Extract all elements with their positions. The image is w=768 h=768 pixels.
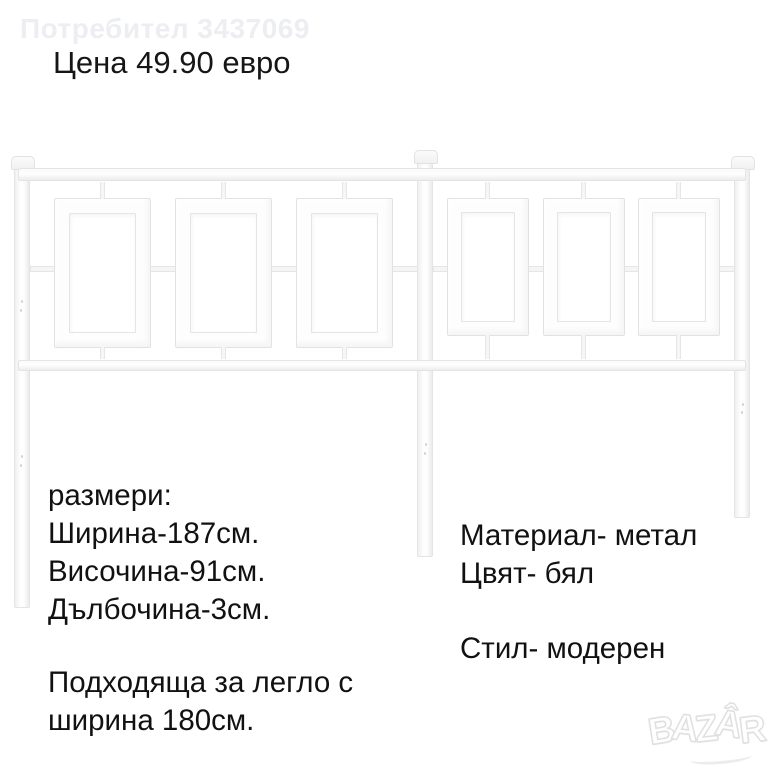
dimensions-block: размери: Ширина-187см. Височина-91см. Дъ… xyxy=(48,477,270,629)
color-line: Цвят- бял xyxy=(460,555,697,593)
top-rail xyxy=(18,168,746,181)
frame-opening xyxy=(557,212,611,322)
depth-line: Дълбочина-3см. xyxy=(48,591,270,629)
bed-post-left xyxy=(14,158,30,608)
bed-post-right xyxy=(734,158,750,518)
connector xyxy=(221,347,226,359)
connector xyxy=(342,182,347,199)
connector xyxy=(100,182,105,199)
screw-mark xyxy=(21,300,23,303)
sizes-title: размери: xyxy=(48,477,270,515)
frame-rectangle xyxy=(447,198,529,336)
connector xyxy=(485,335,490,359)
connector xyxy=(581,182,586,199)
screw-mark xyxy=(742,403,744,406)
height-line: Височина-91см. xyxy=(48,553,270,591)
screw-mark xyxy=(20,309,22,312)
frame-opening xyxy=(190,213,257,333)
frame-rectangle xyxy=(543,198,625,336)
frame-rectangle xyxy=(175,198,272,348)
connector xyxy=(676,182,681,199)
frame-opening xyxy=(69,213,136,333)
connector xyxy=(221,182,226,199)
bottom-rail xyxy=(18,360,746,371)
listing-image: Потребител 3437069 Цена 49.90 евро xyxy=(0,0,768,768)
screw-mark xyxy=(20,464,22,467)
price-text: Цена 49.90 евро xyxy=(53,45,291,81)
frame-rectangle xyxy=(296,198,393,348)
material-line: Материал- метал xyxy=(460,517,697,555)
connector xyxy=(581,335,586,359)
screw-mark xyxy=(741,411,743,414)
frame-rectangle xyxy=(54,198,151,348)
connector xyxy=(342,347,347,359)
connector xyxy=(485,182,490,199)
frame-opening xyxy=(652,212,706,322)
width-line: Ширина-187см. xyxy=(48,515,270,553)
fit-note-block: Подходяща за легло с ширина 180см. xyxy=(48,664,353,740)
connector xyxy=(676,335,681,359)
specs-block: Материал- метал Цвят- бял xyxy=(460,517,697,593)
screw-mark xyxy=(424,452,426,455)
screw-mark xyxy=(425,443,427,446)
connector xyxy=(100,347,105,359)
bazar-logo-watermark: BAZÂR xyxy=(648,706,764,764)
fit-line-2: ширина 180см. xyxy=(48,702,353,740)
fit-line-1: Подходяща за легло с xyxy=(48,664,353,702)
frame-opening xyxy=(311,213,378,333)
bed-post-center xyxy=(417,152,433,557)
user-watermark: Потребител 3437069 xyxy=(20,13,310,45)
panel-group-left xyxy=(30,198,417,348)
logo-letter: R xyxy=(737,708,766,753)
frame-rectangle xyxy=(638,198,720,336)
logo-swoosh xyxy=(690,749,753,766)
frame-opening xyxy=(461,212,515,322)
panel-group-right xyxy=(433,198,734,336)
style-line: Стил- модерен xyxy=(460,630,665,668)
screw-mark xyxy=(21,455,23,458)
